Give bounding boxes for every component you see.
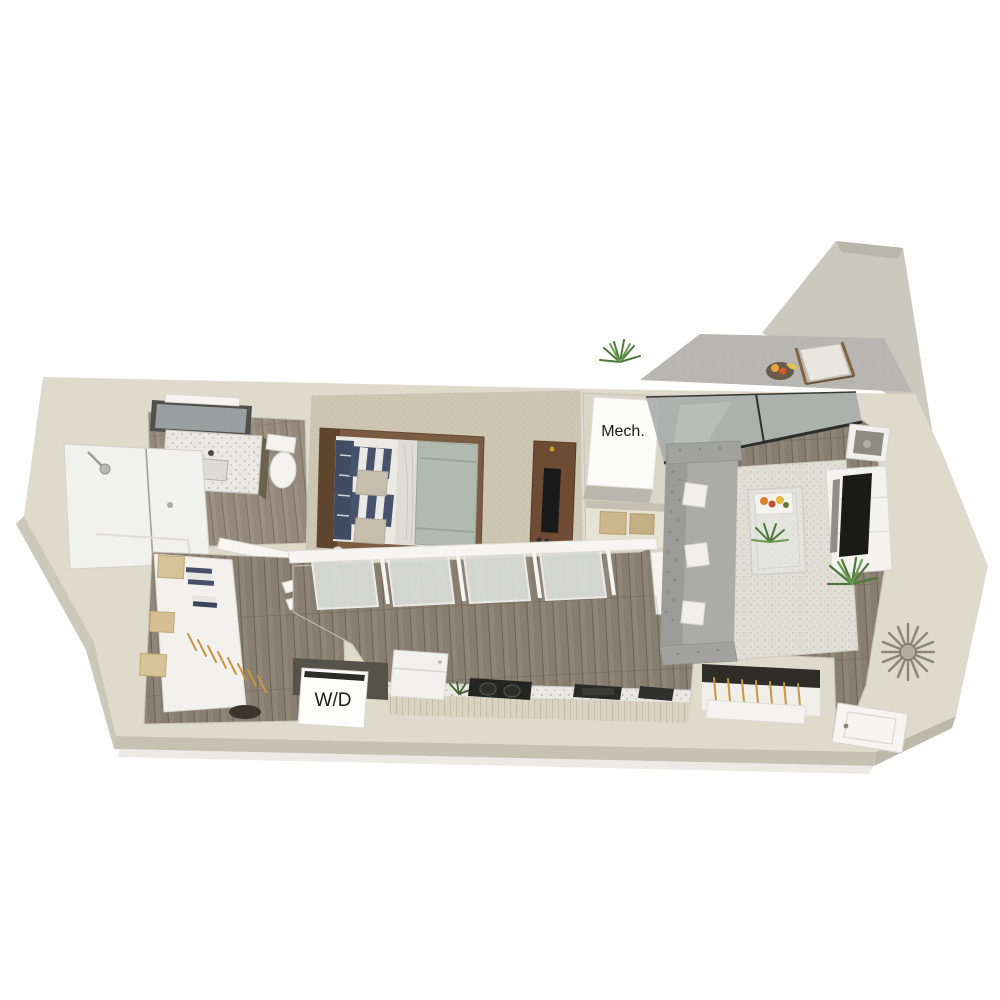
sofa — [660, 441, 742, 665]
floorplan-svg: Mech. — [0, 0, 1000, 1000]
coffee-table — [748, 487, 806, 575]
sofa-pillow — [685, 543, 710, 568]
sofa-pillow — [683, 483, 708, 508]
bedroom-tv — [541, 468, 561, 533]
wd-label: W/D — [315, 690, 352, 711]
tv-console — [826, 466, 892, 574]
bed-accent-pillow — [354, 518, 386, 544]
mech-unit — [587, 397, 660, 489]
refrigerator — [390, 650, 448, 700]
bedroom-media-console — [530, 441, 576, 547]
vanity-faucet-icon — [208, 450, 214, 456]
coffee-table-tray — [754, 492, 794, 515]
living-room — [646, 392, 892, 665]
balcony-plant-icon — [600, 340, 640, 362]
wall-planter-box — [846, 424, 890, 462]
shower — [64, 444, 210, 569]
closet-bag — [229, 705, 261, 719]
sofa-pillow — [681, 601, 705, 625]
floorplan-render: Mech. — [0, 0, 1000, 1000]
shower-floor — [64, 444, 210, 569]
bathroom-mirror — [150, 394, 252, 437]
bed — [317, 428, 484, 556]
tv-screen — [839, 473, 872, 557]
bedroom — [306, 391, 582, 559]
coat-closet — [702, 664, 820, 724]
sofa-arm-top — [666, 441, 742, 464]
sofa-arm-bottom — [660, 642, 737, 665]
sunburst-mirror-icon — [882, 624, 934, 680]
bed-accent-pillow — [356, 470, 388, 496]
mech-label: Mech. — [601, 423, 645, 440]
